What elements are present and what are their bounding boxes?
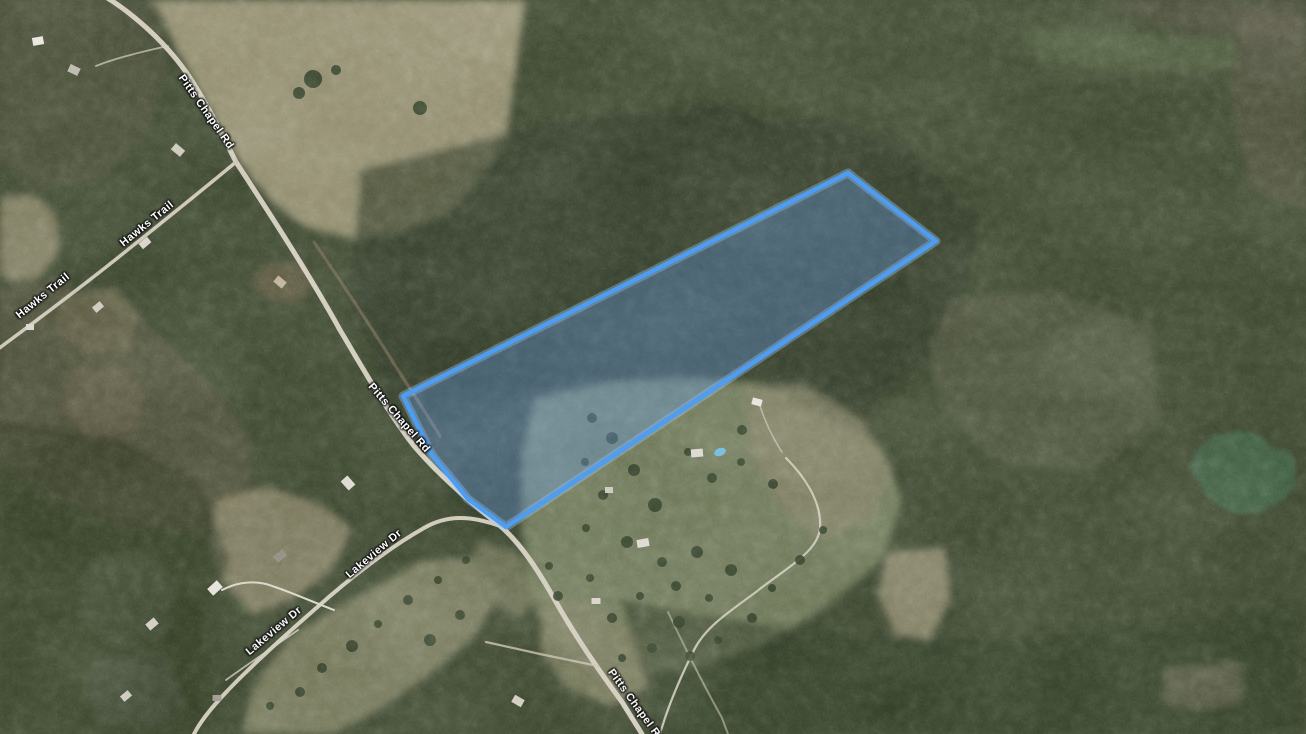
map-imagery [0, 0, 1306, 734]
satellite-map[interactable]: Pitts Chapel RdPitts Chapel RdPitts Chap… [0, 0, 1306, 734]
